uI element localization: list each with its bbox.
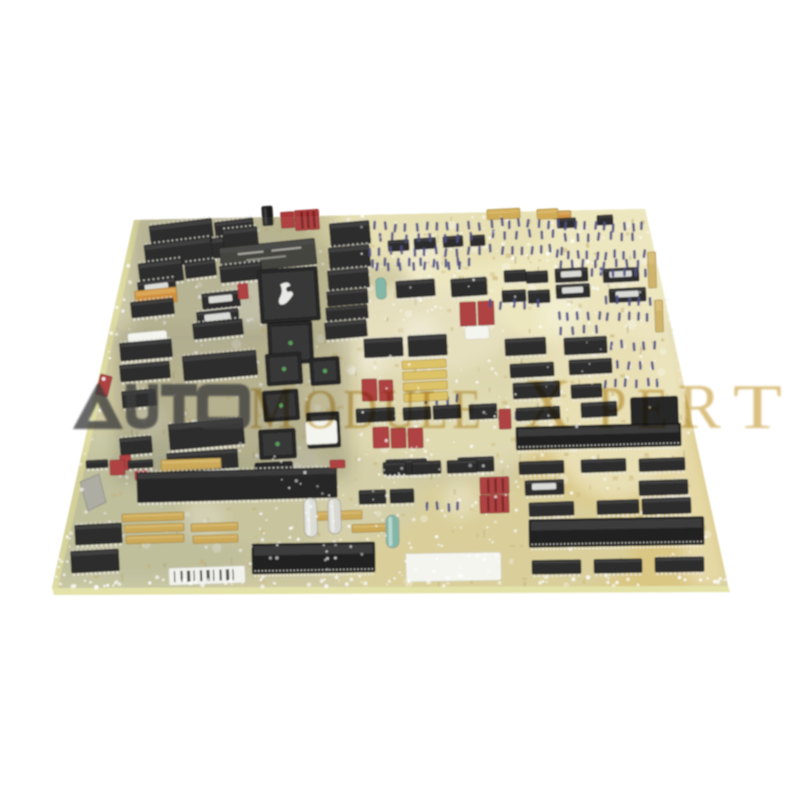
svg-text:U: U xyxy=(382,380,416,441)
svg-text:M: M xyxy=(249,375,294,442)
svg-text:D: D xyxy=(343,380,377,441)
svg-text:O: O xyxy=(303,380,337,441)
svg-text:R: R xyxy=(678,371,721,442)
svg-text:X: X xyxy=(524,364,571,444)
svg-text:T: T xyxy=(733,371,782,443)
svg-text:E: E xyxy=(452,380,481,441)
svg-text:P: P xyxy=(597,376,626,442)
svg-text:L: L xyxy=(419,380,448,441)
svg-text:E: E xyxy=(637,376,668,441)
